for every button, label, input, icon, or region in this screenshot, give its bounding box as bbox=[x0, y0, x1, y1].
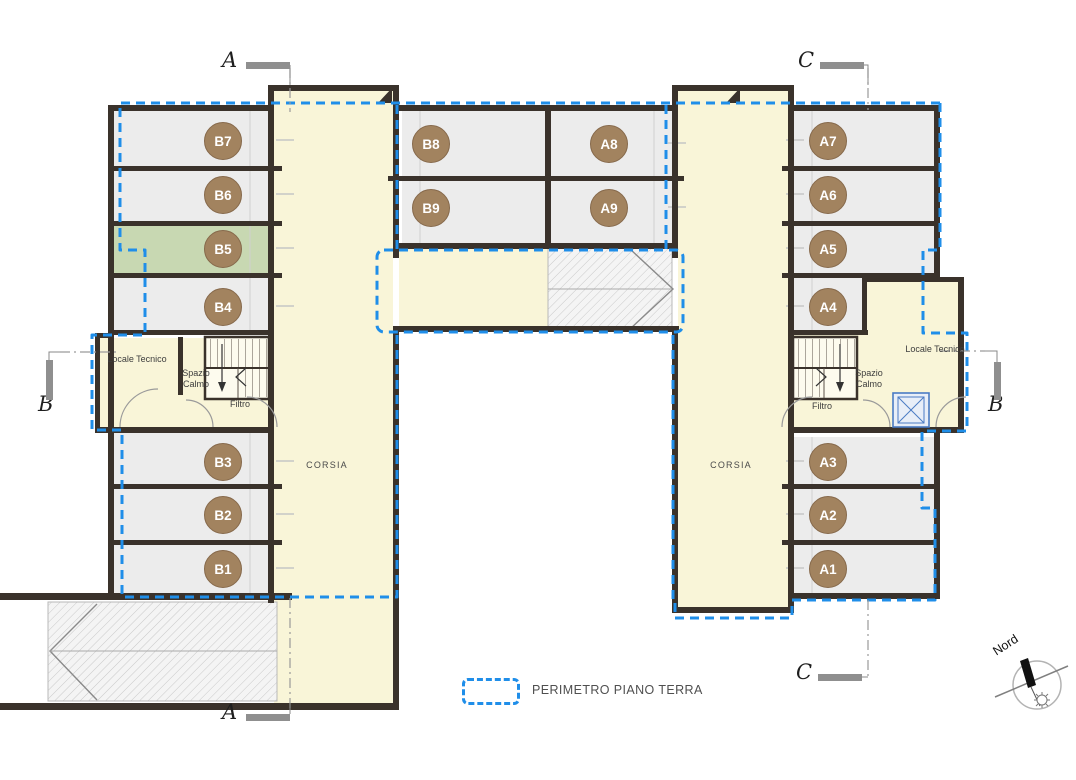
section-bar bbox=[994, 362, 1001, 400]
floor-plan: B7 B6 B5 B4 B3 B2 B1 B8 B9 A8 A9 A7 A6 A… bbox=[0, 0, 1076, 780]
room-label-b8: B8 bbox=[412, 125, 450, 163]
section-marker-a-bottom: A bbox=[222, 700, 237, 724]
section-bar bbox=[820, 62, 864, 69]
room-label-a4: A4 bbox=[809, 288, 847, 326]
sun-icon bbox=[1034, 692, 1050, 708]
room-label-a6: A6 bbox=[809, 176, 847, 214]
room-label-a9: A9 bbox=[590, 189, 628, 227]
room-b5-green-fill bbox=[114, 226, 272, 273]
section-bar bbox=[246, 714, 290, 721]
filtro-left-label: Filtro bbox=[220, 399, 260, 410]
room-label-b1: B1 bbox=[204, 550, 242, 588]
room-label-b5: B5 bbox=[204, 230, 242, 268]
room-label-b2: B2 bbox=[204, 496, 242, 534]
locale-tecnico-left-label: Locale Tecnico bbox=[107, 354, 167, 365]
compass-needle bbox=[1020, 658, 1036, 688]
room-label-b9: B9 bbox=[412, 189, 450, 227]
corridor-right-fill bbox=[678, 91, 788, 607]
floor-plan-drawing bbox=[0, 0, 1076, 780]
spazio-calmo-right-label: Spazio Calmo bbox=[847, 368, 891, 389]
legend-label: PERIMETRO PIANO TERRA bbox=[532, 683, 703, 697]
locale-tecnico-right-label: Locale Tecnico bbox=[905, 344, 965, 355]
section-marker-a-top: A bbox=[222, 48, 237, 72]
elevator bbox=[893, 393, 929, 427]
section-marker-c-top: C bbox=[798, 48, 814, 72]
room-label-a7: A7 bbox=[809, 122, 847, 160]
section-bar bbox=[818, 674, 862, 681]
section-marker-c-bottom: C bbox=[796, 660, 812, 684]
filtro-right-label: Filtro bbox=[802, 401, 842, 412]
legend-perimeter-swatch bbox=[462, 678, 520, 705]
room-label-b4: B4 bbox=[204, 288, 242, 326]
corridor-left-fill bbox=[274, 91, 393, 703]
corridor-left-label: CORSIA bbox=[287, 460, 367, 470]
room-label-a5: A5 bbox=[809, 230, 847, 268]
section-bar bbox=[246, 62, 290, 69]
north-compass bbox=[995, 658, 1068, 709]
room-label-a8: A8 bbox=[590, 125, 628, 163]
room-label-a2: A2 bbox=[809, 496, 847, 534]
room-label-b7: B7 bbox=[204, 122, 242, 160]
corridor-right-label: CORSIA bbox=[691, 460, 771, 470]
room-label-a1: A1 bbox=[809, 550, 847, 588]
room-label-b3: B3 bbox=[204, 443, 242, 481]
room-label-a3: A3 bbox=[809, 443, 847, 481]
room-label-b6: B6 bbox=[204, 176, 242, 214]
section-bar bbox=[46, 360, 53, 400]
spazio-calmo-left-label: Spazio Calmo bbox=[174, 368, 218, 389]
